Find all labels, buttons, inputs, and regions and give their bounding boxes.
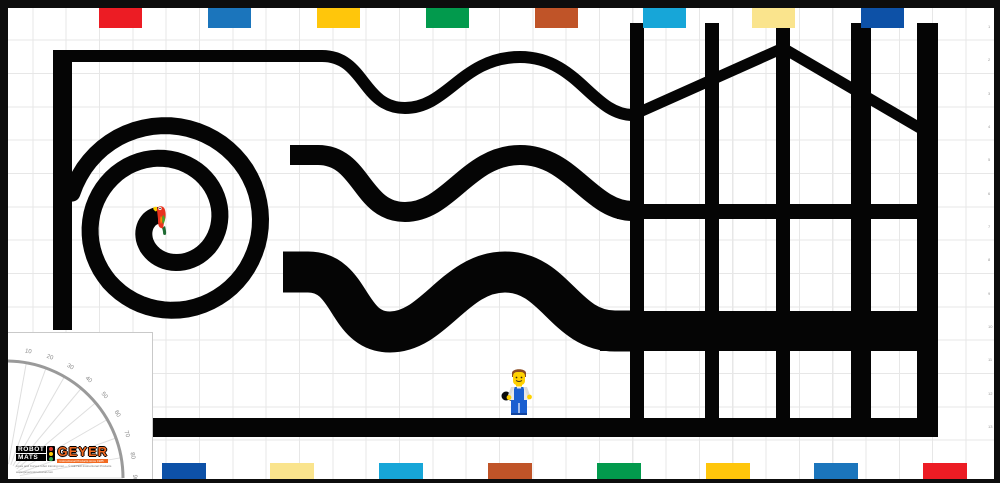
traffic-light-dot bbox=[49, 447, 53, 451]
calibration-brick bbox=[317, 8, 360, 28]
protractor-degree-label: 20 bbox=[46, 354, 55, 362]
traffic-light-icon bbox=[47, 446, 55, 461]
calibration-brick bbox=[861, 8, 904, 28]
grid-vertical-bar-1 bbox=[630, 23, 644, 437]
right-ruler-number: 8 bbox=[988, 258, 990, 262]
calibration-brick bbox=[752, 8, 795, 28]
right-ruler-number: 9 bbox=[988, 292, 990, 296]
robot-training-mat: 0102030405060708090 ROBOT MATS GEYER Ins… bbox=[0, 0, 1000, 483]
fine-print-line-2: www.geyerinstructional.com bbox=[16, 471, 134, 475]
mat-frame-left bbox=[0, 0, 8, 483]
bottom-wave-path bbox=[283, 272, 640, 332]
grid-vertical-bar-2 bbox=[705, 23, 719, 437]
protractor-degree-label: 40 bbox=[84, 375, 93, 384]
calibration-brick bbox=[99, 8, 142, 28]
traffic-light-dot bbox=[49, 457, 53, 461]
right-ruler-number: 4 bbox=[988, 125, 990, 129]
right-ruler-number: 12 bbox=[988, 392, 992, 396]
robot-word: ROBOT bbox=[16, 446, 46, 453]
right-ruler-number: 5 bbox=[988, 158, 990, 162]
traffic-light-dot bbox=[49, 452, 53, 456]
grid-horizontal-bar-thin bbox=[617, 204, 938, 219]
brand-tagline: Instructional Products since 1985 bbox=[57, 459, 108, 463]
border-top-wave-path bbox=[53, 56, 633, 115]
bottom-baseline-bar bbox=[152, 418, 938, 437]
grid-horizontal-bar-thick bbox=[600, 311, 938, 351]
right-ruler-number: 1 bbox=[988, 25, 990, 29]
protractor-degree-label: 30 bbox=[66, 363, 75, 372]
protractor-degree-label: 60 bbox=[113, 410, 122, 419]
left-border-bar bbox=[53, 50, 72, 330]
mats-word: MATS bbox=[16, 454, 46, 461]
fine-print-line-1: Lines and Curves robot training mat — © … bbox=[16, 465, 134, 469]
robot-mats-wordmark: ROBOT MATS bbox=[16, 446, 46, 461]
grid-vertical-bar-3 bbox=[776, 23, 790, 437]
parrot-icon bbox=[149, 202, 175, 236]
brand-logo: ROBOT MATS GEYER Instructional Products … bbox=[16, 446, 134, 474]
right-ruler-number: 7 bbox=[988, 225, 990, 229]
protractor-degree-label: 50 bbox=[100, 391, 109, 400]
calibration-brick bbox=[643, 8, 686, 28]
right-ruler-number: 3 bbox=[988, 92, 990, 96]
mat-frame-top bbox=[0, 0, 1000, 8]
right-ruler-number: 2 bbox=[988, 58, 990, 62]
right-ruler-number: 13 bbox=[988, 425, 992, 429]
calibration-brick bbox=[208, 8, 251, 28]
protractor-panel: 0102030405060708090 ROBOT MATS GEYER Ins… bbox=[8, 332, 153, 480]
mat-frame-right bbox=[994, 0, 1000, 483]
geyer-brand: GEYER bbox=[57, 446, 108, 458]
grid-vertical-bar-4 bbox=[851, 23, 871, 437]
protractor-degree-label: 10 bbox=[24, 348, 32, 355]
calibration-brick bbox=[535, 8, 578, 28]
right-ruler-number: 11 bbox=[988, 358, 992, 362]
minifigure-icon bbox=[498, 367, 538, 419]
calibration-brick bbox=[426, 8, 469, 28]
protractor-degree-label: 70 bbox=[122, 430, 130, 439]
grid-vertical-bar-5 bbox=[917, 23, 938, 437]
middle-wave-path bbox=[290, 155, 633, 212]
right-ruler-number: 6 bbox=[988, 192, 990, 196]
right-ruler-number: 10 bbox=[988, 325, 992, 329]
mat-frame-bottom bbox=[0, 479, 1000, 483]
